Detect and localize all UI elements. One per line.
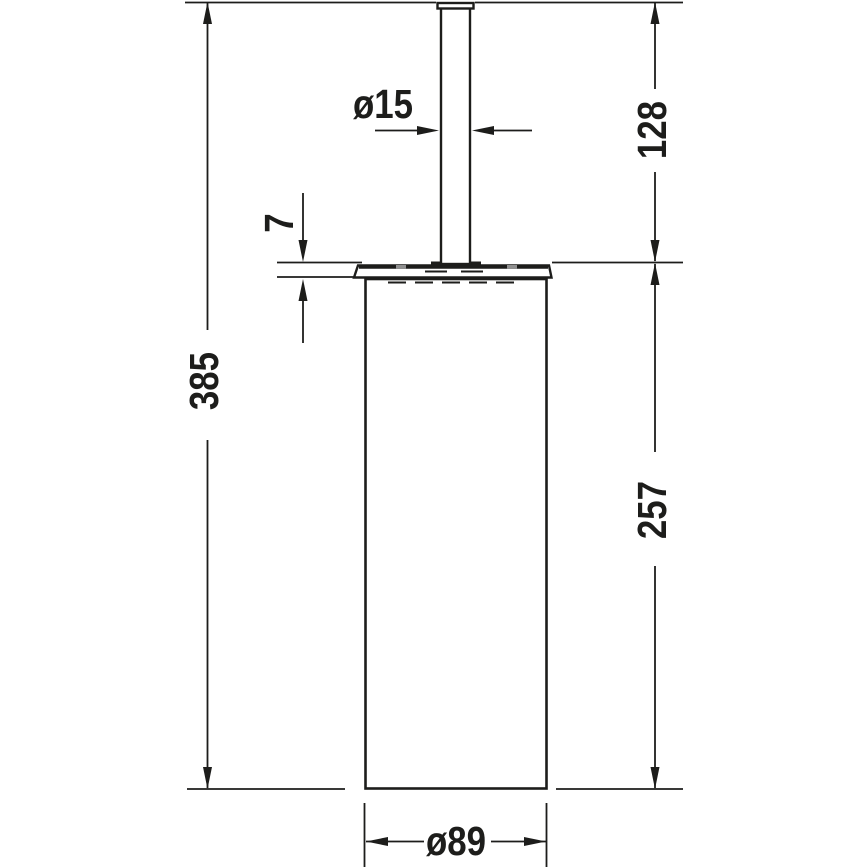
drawing-canvas: 385 128 257 7 ø15 ø89	[0, 0, 868, 868]
dim-label-total-height: 385	[182, 352, 227, 410]
arrow-up-icon	[651, 2, 660, 24]
handle-rod	[441, 6, 470, 264]
dimension-body-diameter: ø89	[366, 819, 546, 864]
container-body	[366, 279, 547, 789]
dim-label-lid-thickness: 7	[257, 213, 302, 232]
arrow-right-icon	[524, 837, 546, 846]
arrow-up-icon	[299, 279, 308, 301]
arrow-left-icon	[366, 837, 388, 846]
technical-drawing: 385 128 257 7 ø15 ø89	[0, 0, 868, 868]
arrow-right-icon	[417, 126, 439, 135]
dimension-handle-height: 128	[630, 2, 675, 262]
lid-edge-notch-left	[396, 265, 406, 269]
handle-rod-cap	[438, 3, 474, 9]
arrow-down-icon	[651, 767, 660, 789]
arrow-down-icon	[203, 767, 212, 789]
dimension-body-height: 257	[630, 263, 675, 789]
dim-label-body-diameter: ø89	[426, 819, 486, 864]
dim-label-handle-height: 128	[630, 101, 675, 159]
lid-edge-notch-right	[507, 265, 517, 269]
dim-label-handle-diameter: ø15	[353, 82, 413, 127]
dim-label-body-height: 257	[630, 481, 675, 539]
arrow-up-icon	[203, 2, 212, 24]
arrow-down-icon	[651, 240, 660, 262]
arrow-up-icon	[651, 263, 660, 285]
arrow-left-icon	[472, 126, 494, 135]
arrow-down-icon	[299, 240, 308, 262]
dimension-total-height: 385	[182, 2, 227, 789]
dimension-lid-thickness: 7	[257, 193, 307, 343]
